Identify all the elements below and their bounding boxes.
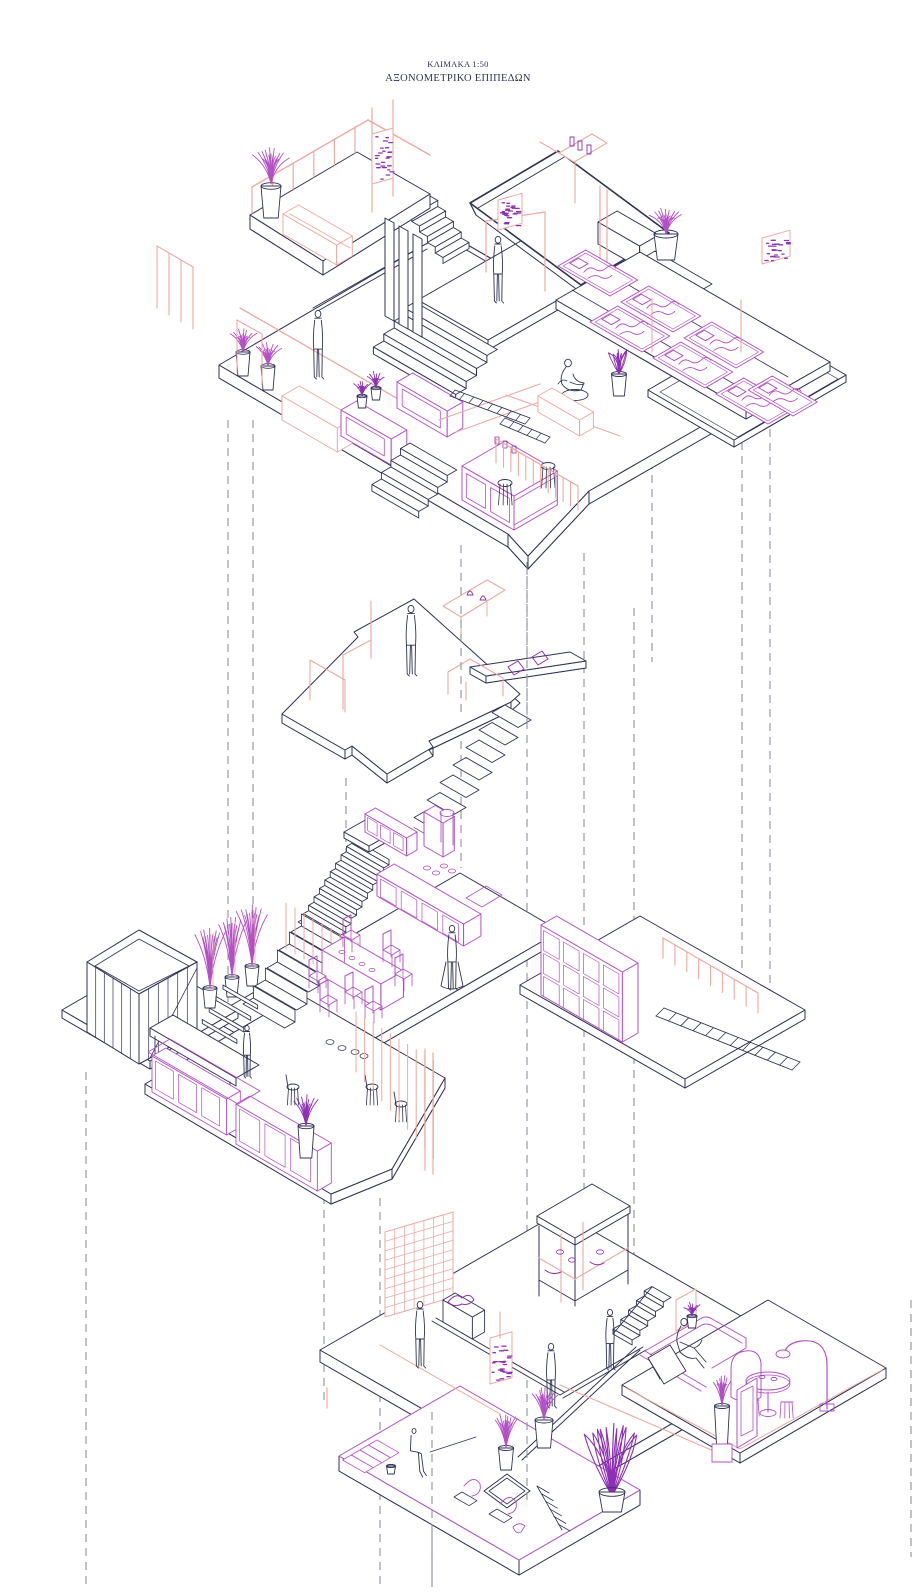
svg-text:ΑΞΟΝΟΜΕΤΡΙΚΟ ΕΠΙΠΕΔΩΝ: ΑΞΟΝΟΜΕΤΡΙΚΟ ΕΠΙΠΕΔΩΝ: [385, 73, 531, 84]
svg-text:ΚΛΙΜΑΚΑ 1:50: ΚΛΙΜΑΚΑ 1:50: [427, 59, 488, 69]
